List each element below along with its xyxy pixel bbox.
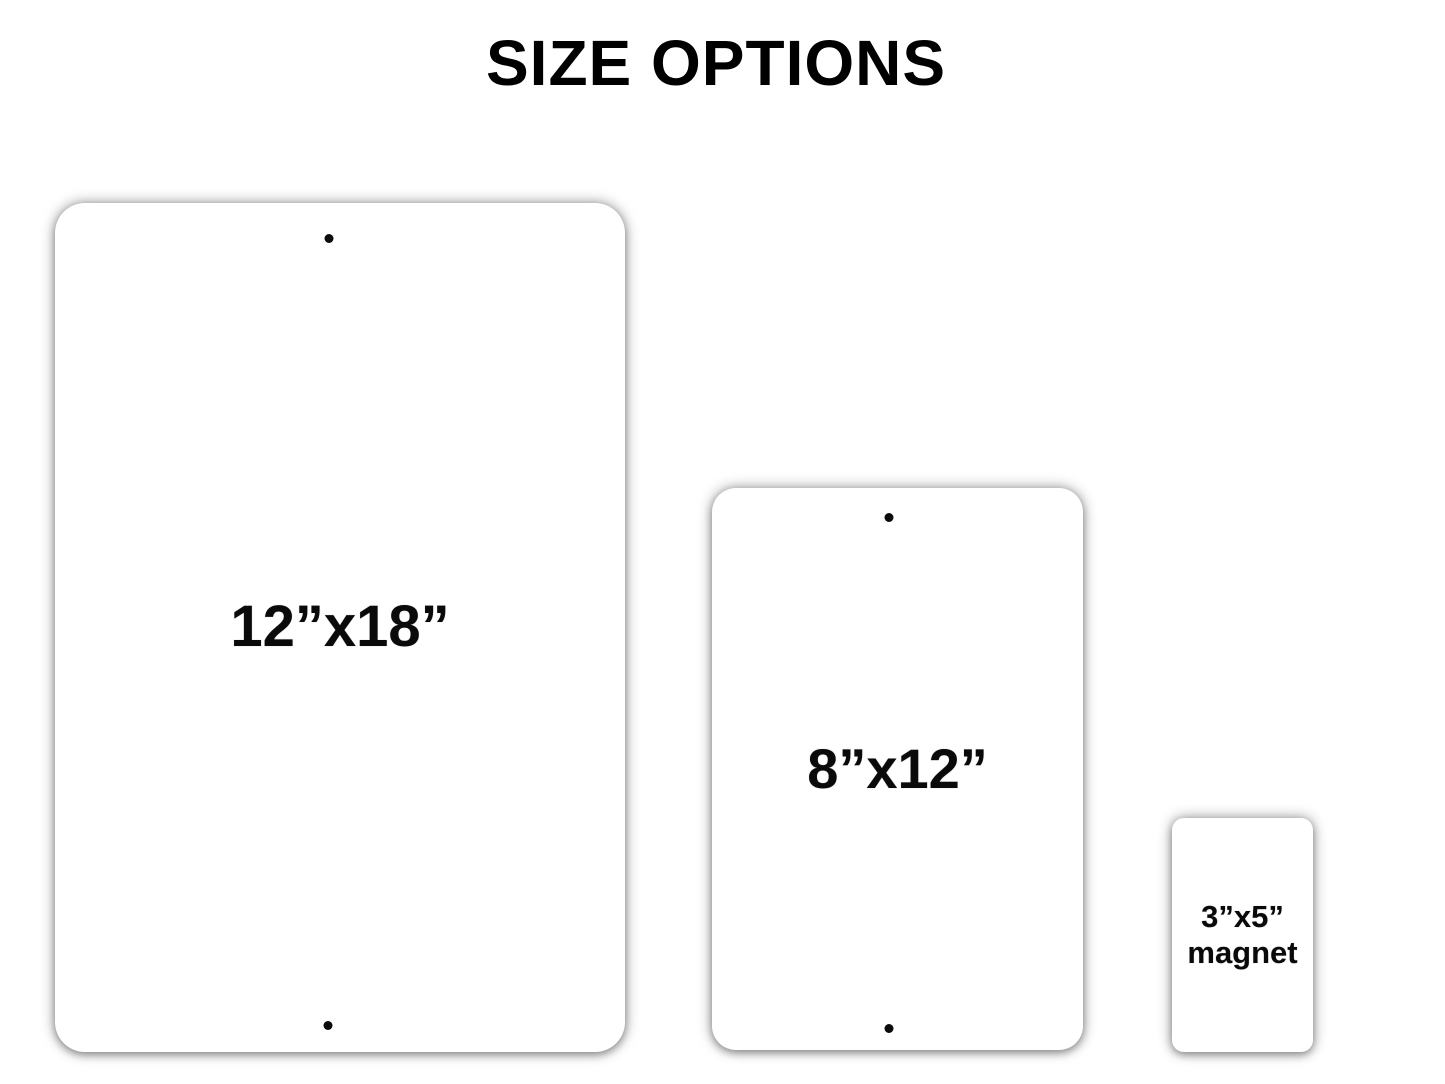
page-title: SIZE OPTIONS xyxy=(0,30,1432,97)
size-label-line2: magnet xyxy=(1187,935,1297,971)
size-label-8x12: 8”x12” xyxy=(807,737,988,801)
mounting-hole-bottom xyxy=(324,1021,333,1030)
size-label-12x18: 12”x18” xyxy=(230,594,449,661)
size-option-sign-12x18: 12”x18” xyxy=(55,203,625,1052)
size-label-line1: 3”x5” xyxy=(1187,899,1297,935)
size-option-sign-8x12: 8”x12” xyxy=(712,488,1083,1050)
mounting-hole-top xyxy=(884,513,893,522)
size-options-figure: SIZE OPTIONS 12”x18” 8”x12” 3”x5” magnet xyxy=(0,0,1445,1084)
size-label-3x5-magnet: 3”x5” magnet xyxy=(1187,899,1297,970)
mounting-hole-top xyxy=(325,234,334,243)
mounting-hole-bottom xyxy=(884,1024,893,1033)
size-option-magnet-3x5: 3”x5” magnet xyxy=(1172,818,1313,1052)
